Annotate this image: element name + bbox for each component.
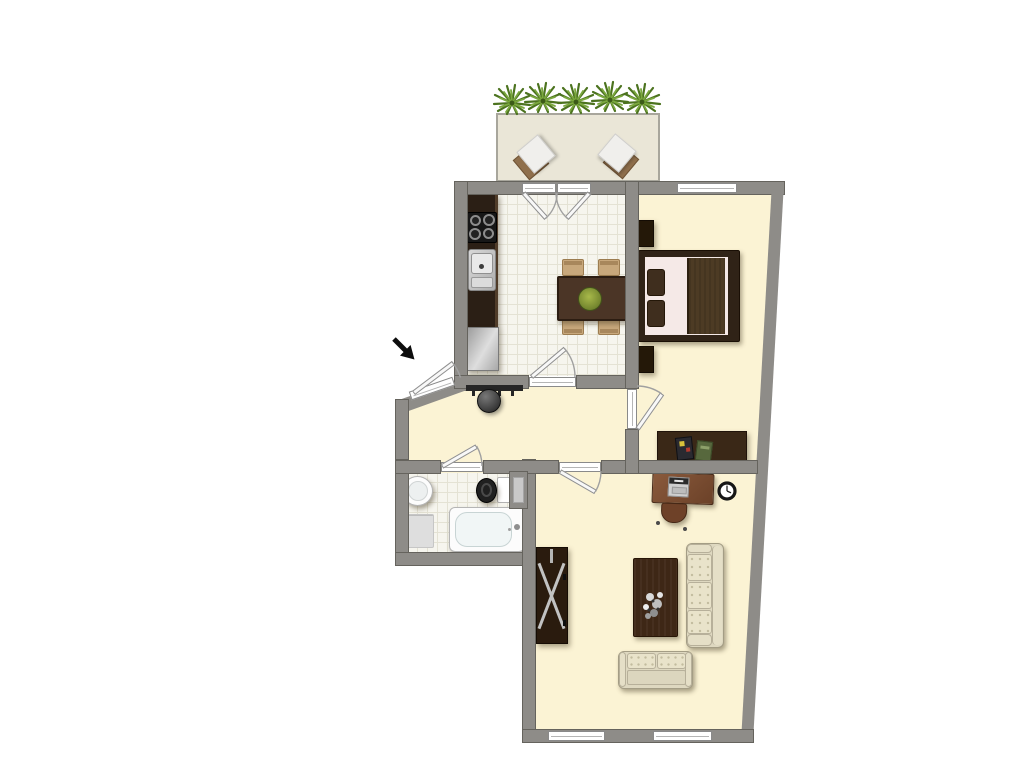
balcony-door-threshold <box>522 183 556 193</box>
living-room-window <box>653 731 712 741</box>
stove-burner <box>469 228 481 240</box>
sofa-arm <box>687 634 712 646</box>
laptop <box>667 476 689 497</box>
bedroom-door-threshold <box>627 389 637 429</box>
wardrobe-handle <box>563 620 566 626</box>
sofa-arm <box>687 544 712 553</box>
book <box>675 436 694 461</box>
nightstand <box>637 346 654 373</box>
sofa-arm <box>619 652 626 687</box>
coat-rack-hook <box>511 391 514 396</box>
sofa-cushion <box>657 653 686 669</box>
sofa-cushion <box>687 554 712 581</box>
sofa-back <box>712 546 722 645</box>
bed-pillow <box>647 300 665 327</box>
sink-faucet <box>479 264 484 269</box>
bed-blanket <box>687 258 725 334</box>
bed-pillow <box>647 269 665 296</box>
refrigerator <box>466 327 499 371</box>
entry-arrow-icon <box>389 334 420 365</box>
wall-hall-bedroom <box>626 430 638 473</box>
nightstand <box>637 220 654 247</box>
dining-chair <box>562 259 584 276</box>
sofa-cushion <box>687 582 712 609</box>
living-room-window <box>548 731 605 741</box>
sofa-seat <box>627 670 686 685</box>
wall-hall-bottom <box>396 461 440 473</box>
kitchen-door-threshold <box>529 377 576 387</box>
sofa-cushion <box>627 653 656 669</box>
floor-plan <box>0 0 1024 768</box>
book <box>695 440 713 462</box>
table-plant <box>578 287 602 311</box>
toilet-lid-ring <box>481 483 492 497</box>
bathroom-shaft <box>513 477 524 503</box>
wall-bath-left <box>396 460 408 565</box>
stove-burner <box>483 214 495 226</box>
chair-caster <box>683 527 687 531</box>
wardrobe-handle <box>563 574 566 580</box>
chair-caster <box>656 521 660 525</box>
washbasin-bowl <box>408 481 428 501</box>
coat-rack-hook <box>472 391 475 396</box>
wall-bath-bottom <box>396 553 535 565</box>
bedroom-window <box>677 183 737 193</box>
dining-chair <box>598 259 620 276</box>
living-room-door-threshold <box>559 462 601 472</box>
wardrobe-rail <box>550 549 553 563</box>
sink-drainer <box>471 277 493 288</box>
bathtub-basin <box>455 512 512 547</box>
stove-burner <box>483 228 494 239</box>
balcony-plants <box>494 82 660 114</box>
bathtub-drain <box>508 528 511 531</box>
wall-kitchen-left <box>455 182 467 390</box>
bath-mat <box>406 514 434 548</box>
stove-burner <box>470 215 481 226</box>
wall-kitchen-bedroom <box>626 182 638 388</box>
sofa-arm <box>685 652 692 687</box>
coat-rack-bag <box>477 389 501 413</box>
sofa-cushion <box>687 610 712 634</box>
coffee-table <box>633 558 678 637</box>
bathtub-faucet <box>514 524 520 530</box>
